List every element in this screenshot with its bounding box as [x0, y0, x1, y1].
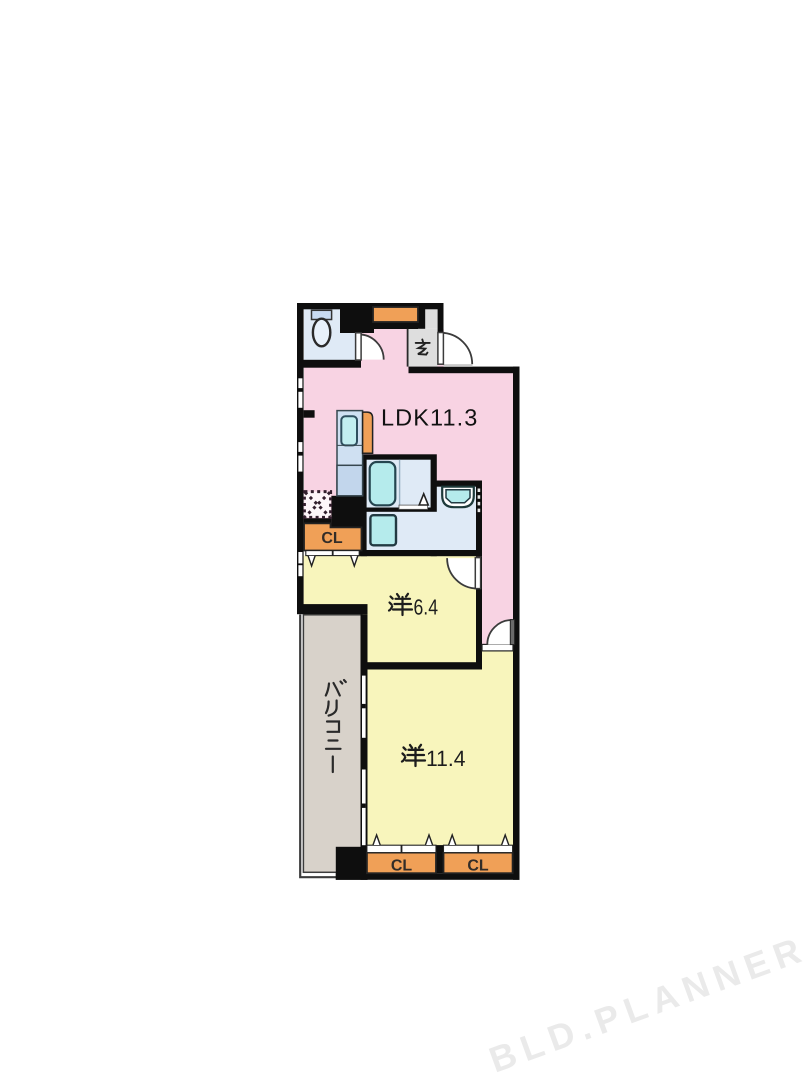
svg-text:CL: CL: [391, 857, 413, 874]
svg-text:11.4: 11.4: [426, 746, 466, 771]
svg-text:CL: CL: [321, 530, 343, 547]
svg-text:LDK11.3: LDK11.3: [381, 405, 478, 431]
svg-text:CL: CL: [467, 857, 489, 874]
svg-text:6.4: 6.4: [413, 595, 438, 620]
